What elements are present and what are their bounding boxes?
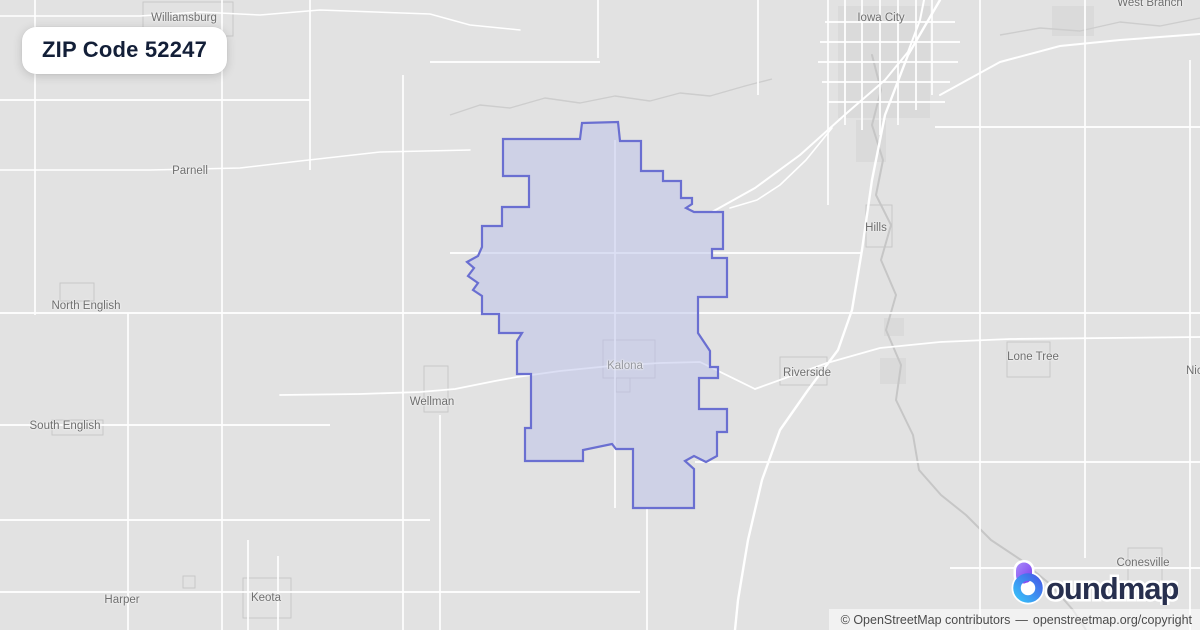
town-boundary-outline (183, 576, 195, 588)
road-line (0, 150, 470, 170)
road-line (755, 337, 1200, 389)
town-boundary-outline (52, 420, 103, 435)
zip-code-badge: ZIP Code 52247 (22, 27, 227, 74)
attribution-bar: © OpenStreetMap contributors — openstree… (829, 609, 1200, 630)
stream-line (1000, 18, 1200, 35)
osm-copyright-link[interactable]: openstreetmap.org/copyright (1033, 613, 1192, 627)
boundmaps-logo-svg: oundmaps (1010, 559, 1178, 605)
stream-line (450, 79, 772, 115)
town-boundary-outline (1007, 342, 1050, 377)
osm-attribution-text: © OpenStreetMap contributors (841, 613, 1011, 627)
town-boundary-outline (866, 205, 892, 247)
town-boundary-outline (424, 366, 448, 412)
urban-area (1052, 6, 1094, 36)
map-canvas[interactable] (0, 0, 1200, 630)
road-line (940, 34, 1200, 95)
town-boundary-outline (60, 283, 94, 301)
urban-area (880, 358, 906, 384)
town-boundary-outline (243, 578, 291, 618)
zip-code-badge-label: ZIP Code 52247 (42, 37, 207, 62)
boundmaps-wordmark: oundmaps (1046, 571, 1178, 605)
boundmaps-pin-icon (1012, 560, 1045, 605)
attribution-separator: — (1015, 613, 1028, 627)
river-line (872, 55, 1086, 630)
boundmaps-logo: oundmaps (1010, 559, 1178, 610)
map-viewport: WilliamsburgIowa CityWest BranchParnellH… (0, 0, 1200, 630)
zip-boundary-polygon[interactable] (467, 122, 727, 508)
